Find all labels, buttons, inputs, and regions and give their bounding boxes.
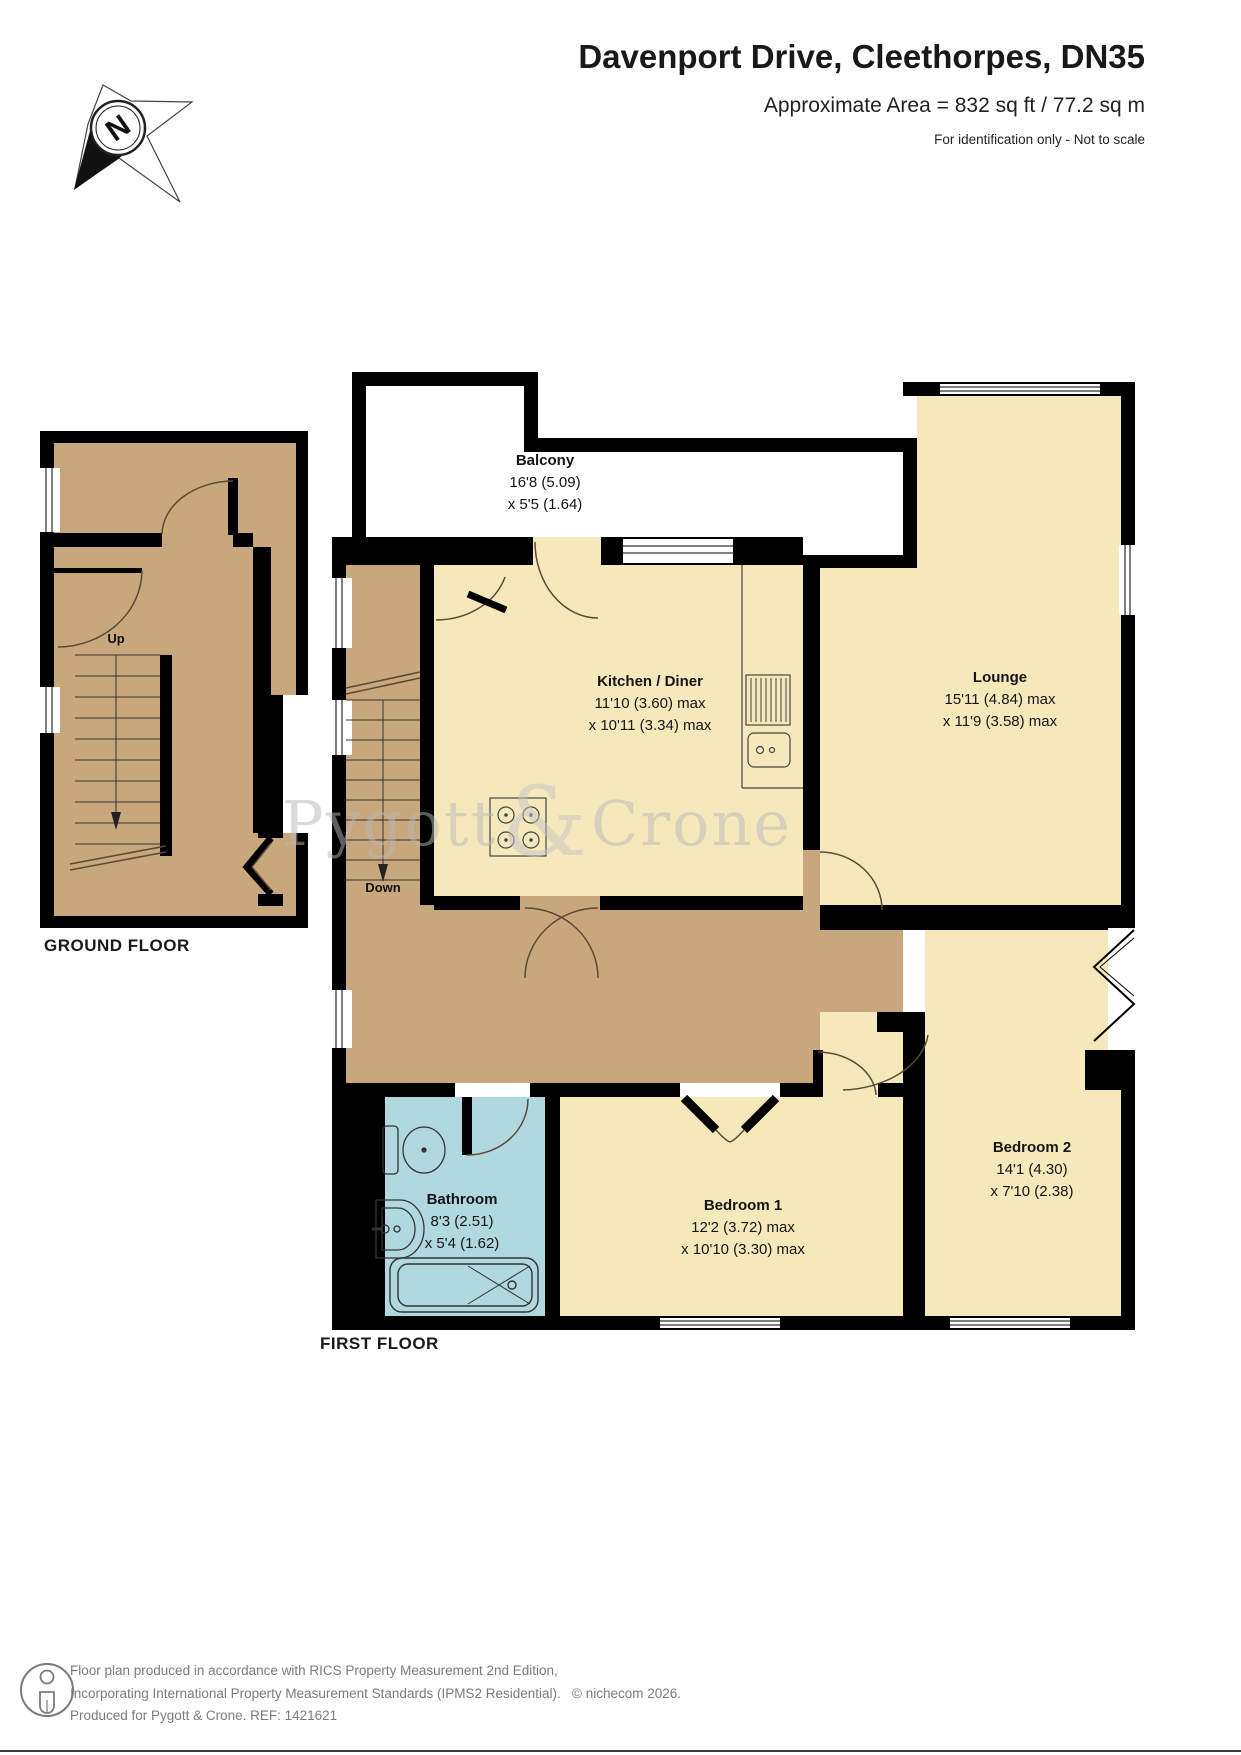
kitchen-label: Kitchen / Diner11'10 (3.60) maxx 10'11 (… <box>589 671 712 737</box>
stairs-down-label: Down <box>365 880 400 895</box>
floor-plan-page: Davenport Drive, Cleethorpes, DN35 Appro… <box>0 0 1241 1755</box>
hall-door-leaf <box>813 1050 823 1097</box>
kitchen-top-window <box>623 539 733 563</box>
footer-line-3: Produced for Pygott & Crone. REF: 142162… <box>70 1705 681 1728</box>
footer-disclaimer: Floor plan produced in accordance with R… <box>70 1660 681 1728</box>
copyright-text: © nichecom 2026. <box>572 1686 681 1701</box>
lounge-label: Lounge15'11 (4.84) maxx 11'9 (3.58) max <box>943 667 1057 733</box>
person-icon <box>20 1660 76 1722</box>
ground-window-1 <box>40 468 60 532</box>
lounge-right-window <box>1119 545 1137 615</box>
bathroom-door-leaf <box>462 1097 472 1155</box>
footer-line-2: Incorporating International Property Mea… <box>70 1683 681 1706</box>
ground-floor-title: GROUND FLOOR <box>44 936 190 956</box>
bedroom2-label: Bedroom 214'1 (4.30)x 7'10 (2.38) <box>991 1137 1074 1203</box>
stairs-up-label: Up <box>107 631 124 646</box>
ground-door-leaf <box>228 478 238 535</box>
first-floor-title: FIRST FLOOR <box>320 1334 439 1354</box>
balcony-fill <box>366 386 903 555</box>
first-hall-fill <box>346 905 820 1083</box>
bedroom1-label: Bedroom 112'2 (3.72) maxx 10'10 (3.30) m… <box>681 1195 805 1261</box>
bedroom2-room-fill <box>925 930 1121 1316</box>
footer-line-1: Floor plan produced in accordance with R… <box>70 1660 681 1683</box>
bedroom1-bottom-window <box>660 1318 780 1328</box>
bedroom2-bottom-window <box>950 1318 1070 1328</box>
ground-window-2 <box>40 687 60 733</box>
bathroom-label: Bathroom8'3 (2.51)x 5'4 (1.62) <box>425 1189 500 1255</box>
bottom-divider <box>0 1750 1241 1752</box>
balcony-label: Balcony16'8 (5.09)x 5'5 (1.64) <box>508 450 583 516</box>
floor-plan-graphic <box>0 0 1241 1755</box>
lounge-top-window <box>940 384 1100 394</box>
ground-floor-plan <box>40 431 308 928</box>
